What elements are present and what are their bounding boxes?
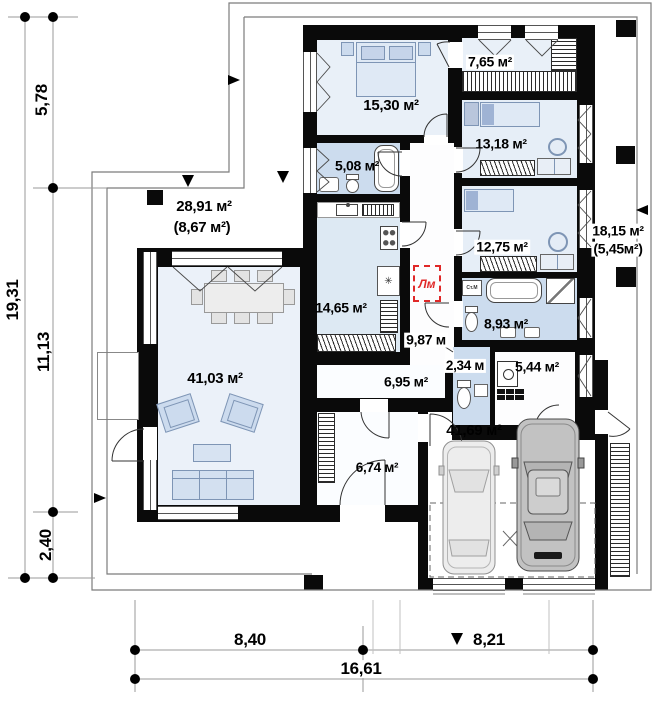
dim-bottom-segment-2: 8,21 <box>473 631 505 649</box>
label-terrace-front-area-secondary: (8,67 м²) <box>174 220 231 236</box>
attic-ladder-marker: Лм <box>413 265 441 302</box>
label-garage-area: 41,69 м² <box>446 423 501 439</box>
label-terrace-side-area: 18,15 м² <box>590 224 646 239</box>
attic-ladder-label: Лм <box>418 277 435 291</box>
label-bedroom-mid-area: 13,18 м² <box>475 137 527 152</box>
dim-bottom-segment-1: 8,40 <box>234 631 266 649</box>
dim-left-total: 19,31 <box>4 279 22 320</box>
label-terrace-side-area-secondary: (5,45м²) <box>591 242 644 257</box>
label-bedroom-small-area: 12,75 м² <box>474 240 530 255</box>
window-swings <box>173 40 591 396</box>
label-bath-main-area: 8,93 м² <box>484 317 528 332</box>
dim-left-segment-2: 11,13 <box>35 332 53 372</box>
label-bedroom-main-area: 15,30 м² <box>363 98 418 114</box>
dim-left-segment-3: 2,40 <box>37 529 55 561</box>
dim-bottom-total: 16,61 <box>338 660 383 678</box>
label-wardrobe-area: 7,65 м² <box>466 55 514 70</box>
dim-left-segment-1: 5,78 <box>33 84 51 116</box>
label-boiler-area: 5,44 м² <box>515 360 559 375</box>
dimension-lines <box>8 17 593 692</box>
label-hall-area: 9,87 м <box>404 333 448 348</box>
car-1 <box>439 441 499 574</box>
label-bath-small-area: 5,08 м² <box>335 159 379 174</box>
label-vestibule-area: 6,74 м² <box>356 461 398 475</box>
label-living-area: 41,03 м² <box>187 371 242 387</box>
label-kitchen-area: 14,65 м² <box>315 301 367 316</box>
floor-plan: ✳ Ст.М Лм <box>0 0 655 718</box>
label-corridor-area: 6,95 м² <box>384 375 428 390</box>
car-2 <box>512 419 584 571</box>
label-wc-area: 2,34 м <box>444 359 486 373</box>
label-terrace-front-area: 28,91 м² <box>176 199 231 215</box>
